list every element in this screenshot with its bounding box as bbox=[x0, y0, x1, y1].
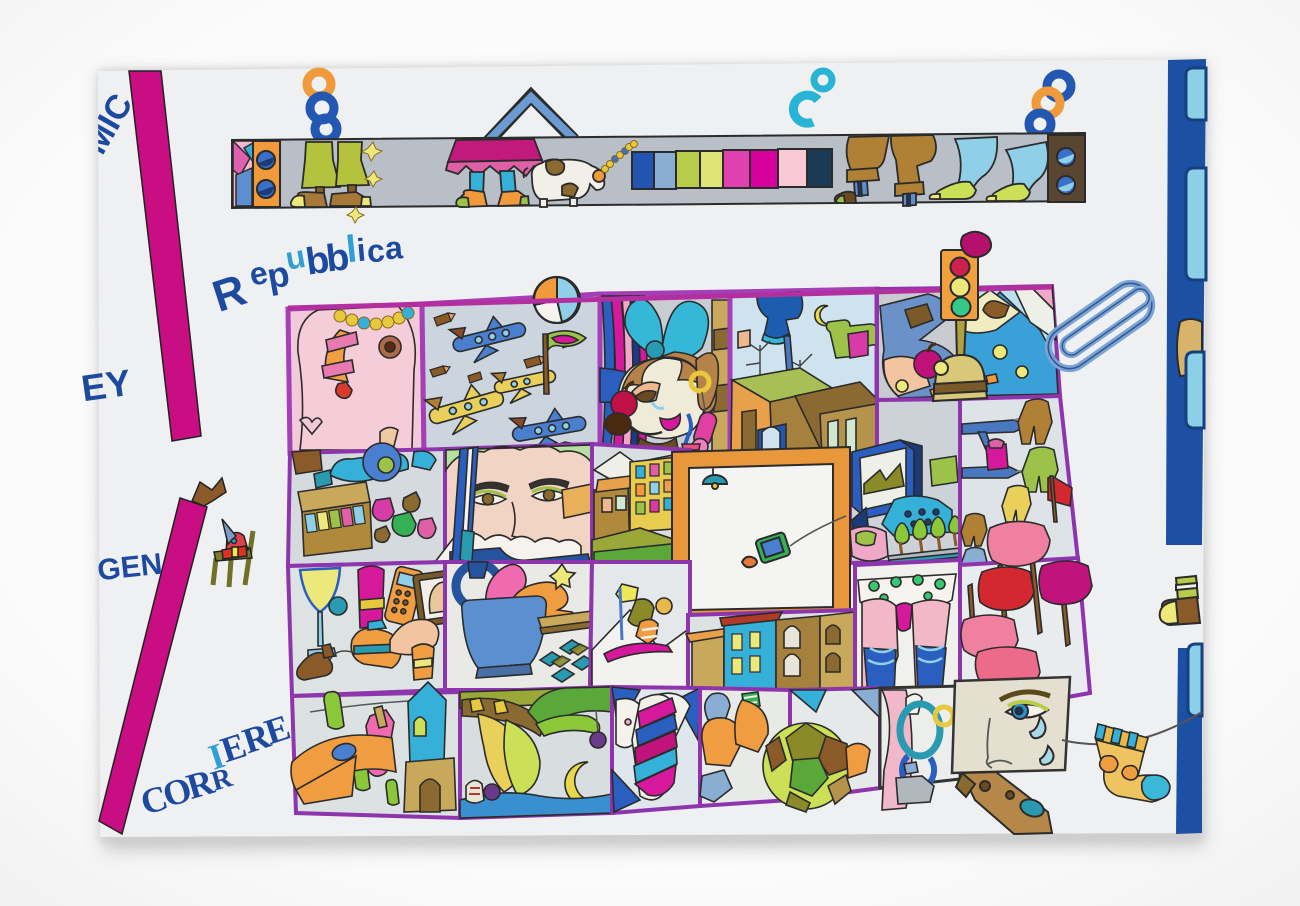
svg-text:a: a bbox=[384, 229, 404, 266]
svg-text:GEN: GEN bbox=[96, 548, 164, 588]
svg-text:EY: EY bbox=[79, 362, 134, 410]
svg-text:c: c bbox=[365, 232, 386, 269]
